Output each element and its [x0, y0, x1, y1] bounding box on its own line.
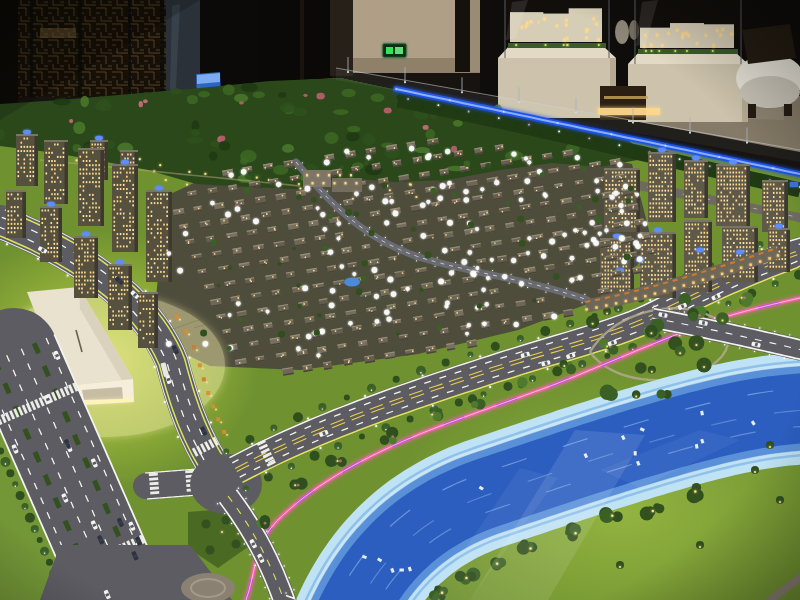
scene	[0, 0, 800, 600]
photo-glare-overlay	[0, 0, 800, 600]
photo-of-sand-table-model	[0, 0, 800, 600]
